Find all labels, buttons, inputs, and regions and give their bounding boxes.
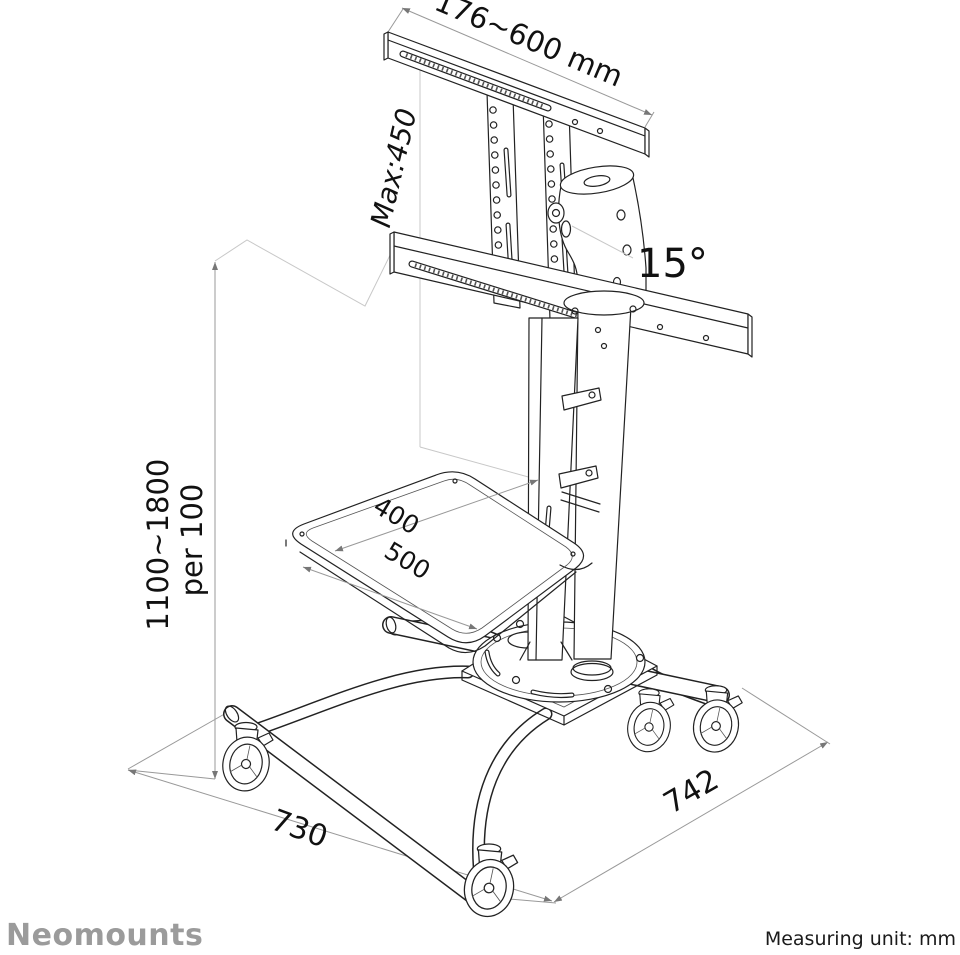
- label-tilt-angle: 15°: [637, 241, 708, 287]
- label-base-side-right: 742: [658, 762, 725, 821]
- label-height-step: per 100: [175, 484, 209, 597]
- caster-rear: [623, 689, 675, 756]
- stand-line-drawing: 176~600 mm Max:450 15° 1100~1800 per 100…: [0, 0, 960, 955]
- label-height-range: 1100~1800 per 100: [141, 449, 209, 630]
- label-base-side-left: 730: [266, 803, 332, 855]
- brand-logo: Neomounts: [6, 918, 203, 953]
- label-bracket-max-height: Max:450: [364, 105, 423, 230]
- label-height-range-value: 1100~1800: [141, 459, 175, 631]
- measuring-unit-note: Measuring unit: mm: [765, 928, 956, 950]
- caster-front: [459, 844, 519, 921]
- product-dimension-diagram: 176~600 mm Max:450 15° 1100~1800 per 100…: [0, 0, 960, 955]
